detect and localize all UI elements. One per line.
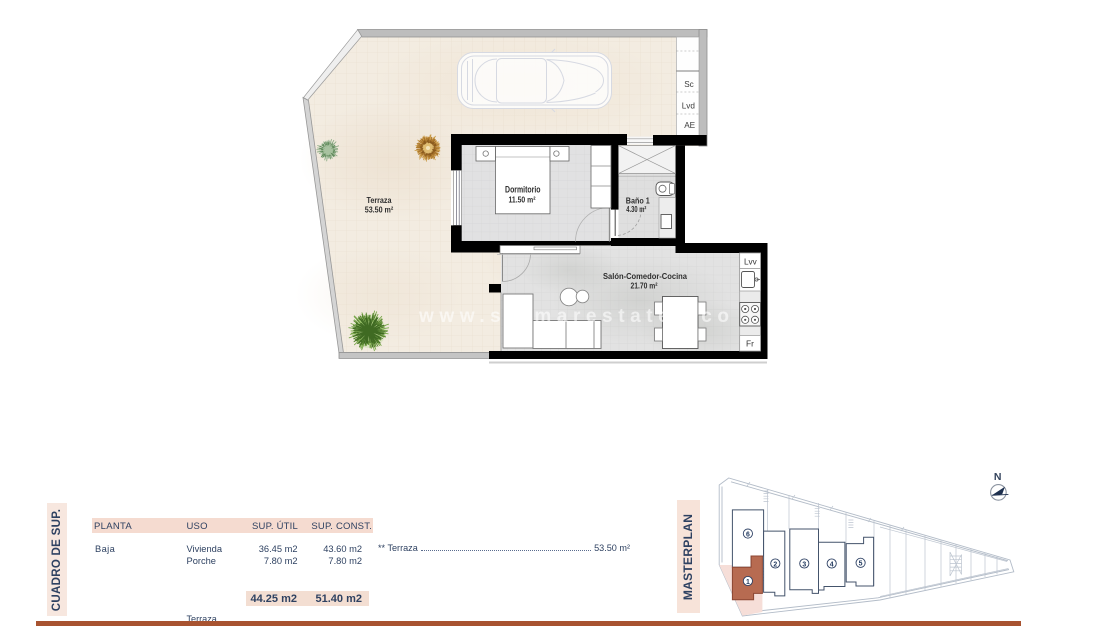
svg-text:21.70 m²: 21.70 m² — [631, 280, 658, 290]
svg-text:Terraza: Terraza — [367, 195, 392, 205]
svg-text:Lvd: Lvd — [682, 101, 696, 110]
svg-text:2: 2 — [773, 561, 777, 568]
svg-text:Lvv: Lvv — [744, 258, 758, 267]
svg-text:Salón-Comedor-Cocina: Salón-Comedor-Cocina — [603, 271, 687, 281]
svg-text:53.50 m²: 53.50 m² — [365, 205, 394, 214]
svg-text:4: 4 — [830, 561, 834, 568]
svg-text:5: 5 — [859, 561, 863, 568]
svg-text:Sc: Sc — [684, 80, 694, 89]
svg-text:4.30 m²: 4.30 m² — [626, 205, 646, 214]
svg-text:Fr: Fr — [746, 339, 754, 349]
svg-text:N: N — [994, 471, 1002, 483]
svg-text:Baño 1: Baño 1 — [626, 195, 650, 205]
svg-text:1: 1 — [746, 579, 750, 586]
svg-text:AE: AE — [684, 121, 695, 130]
svg-text:6: 6 — [746, 531, 750, 538]
svg-text:Dormitorio: Dormitorio — [505, 185, 541, 195]
svg-text:3: 3 — [802, 561, 806, 568]
svg-text:www.solmarestates.co: www.solmarestates.co — [418, 306, 729, 327]
svg-text:11.50 m²: 11.50 m² — [509, 194, 536, 204]
